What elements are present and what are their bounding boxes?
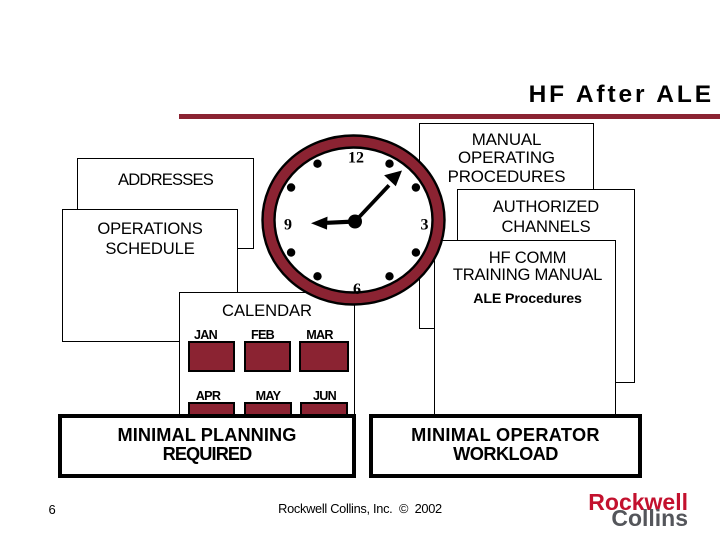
svg-text:3: 3	[421, 217, 429, 234]
svg-text:12: 12	[348, 150, 364, 167]
svg-text:9: 9	[284, 217, 292, 234]
svg-text:6: 6	[353, 281, 361, 298]
